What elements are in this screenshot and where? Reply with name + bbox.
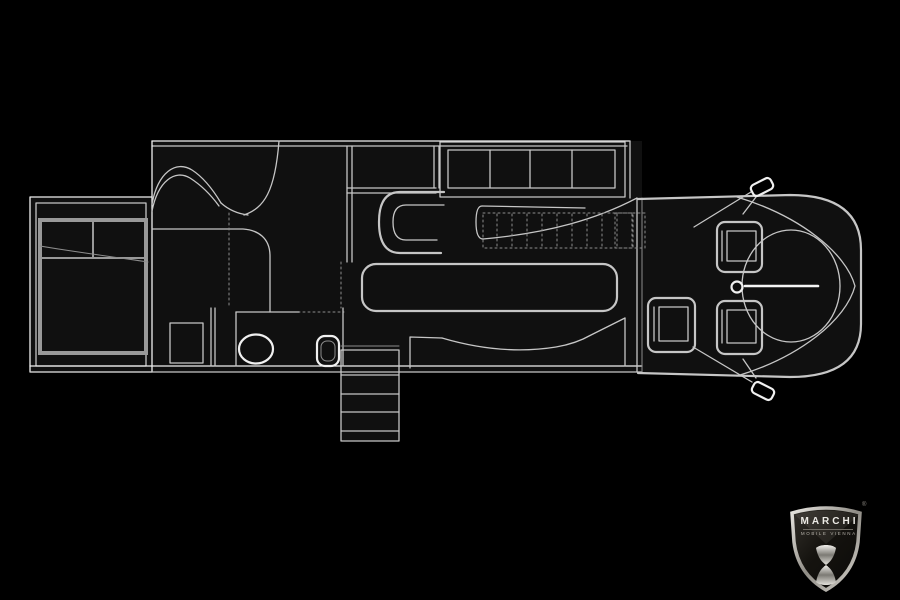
logo-shield-graphic	[778, 500, 878, 598]
registered-trademark-mark: ®	[862, 502, 866, 508]
bedroom-floor	[30, 197, 152, 372]
mirror-head	[749, 177, 774, 198]
floor-plan-canvas: ® MARCHI MOBILE VIENNA	[0, 0, 900, 600]
logo-divider-line	[803, 529, 853, 530]
stairs-floor	[341, 350, 399, 441]
logo-brand-text: MARCHI	[778, 516, 878, 527]
motorhome-floor-plan	[0, 0, 900, 600]
main-body-floor	[152, 141, 642, 372]
mirror-head	[750, 381, 775, 402]
interior-fills	[30, 141, 861, 441]
marchi-logo-badge: ® MARCHI MOBILE VIENNA	[778, 500, 878, 598]
logo-subtitle-text: MOBILE VIENNA	[778, 531, 878, 536]
